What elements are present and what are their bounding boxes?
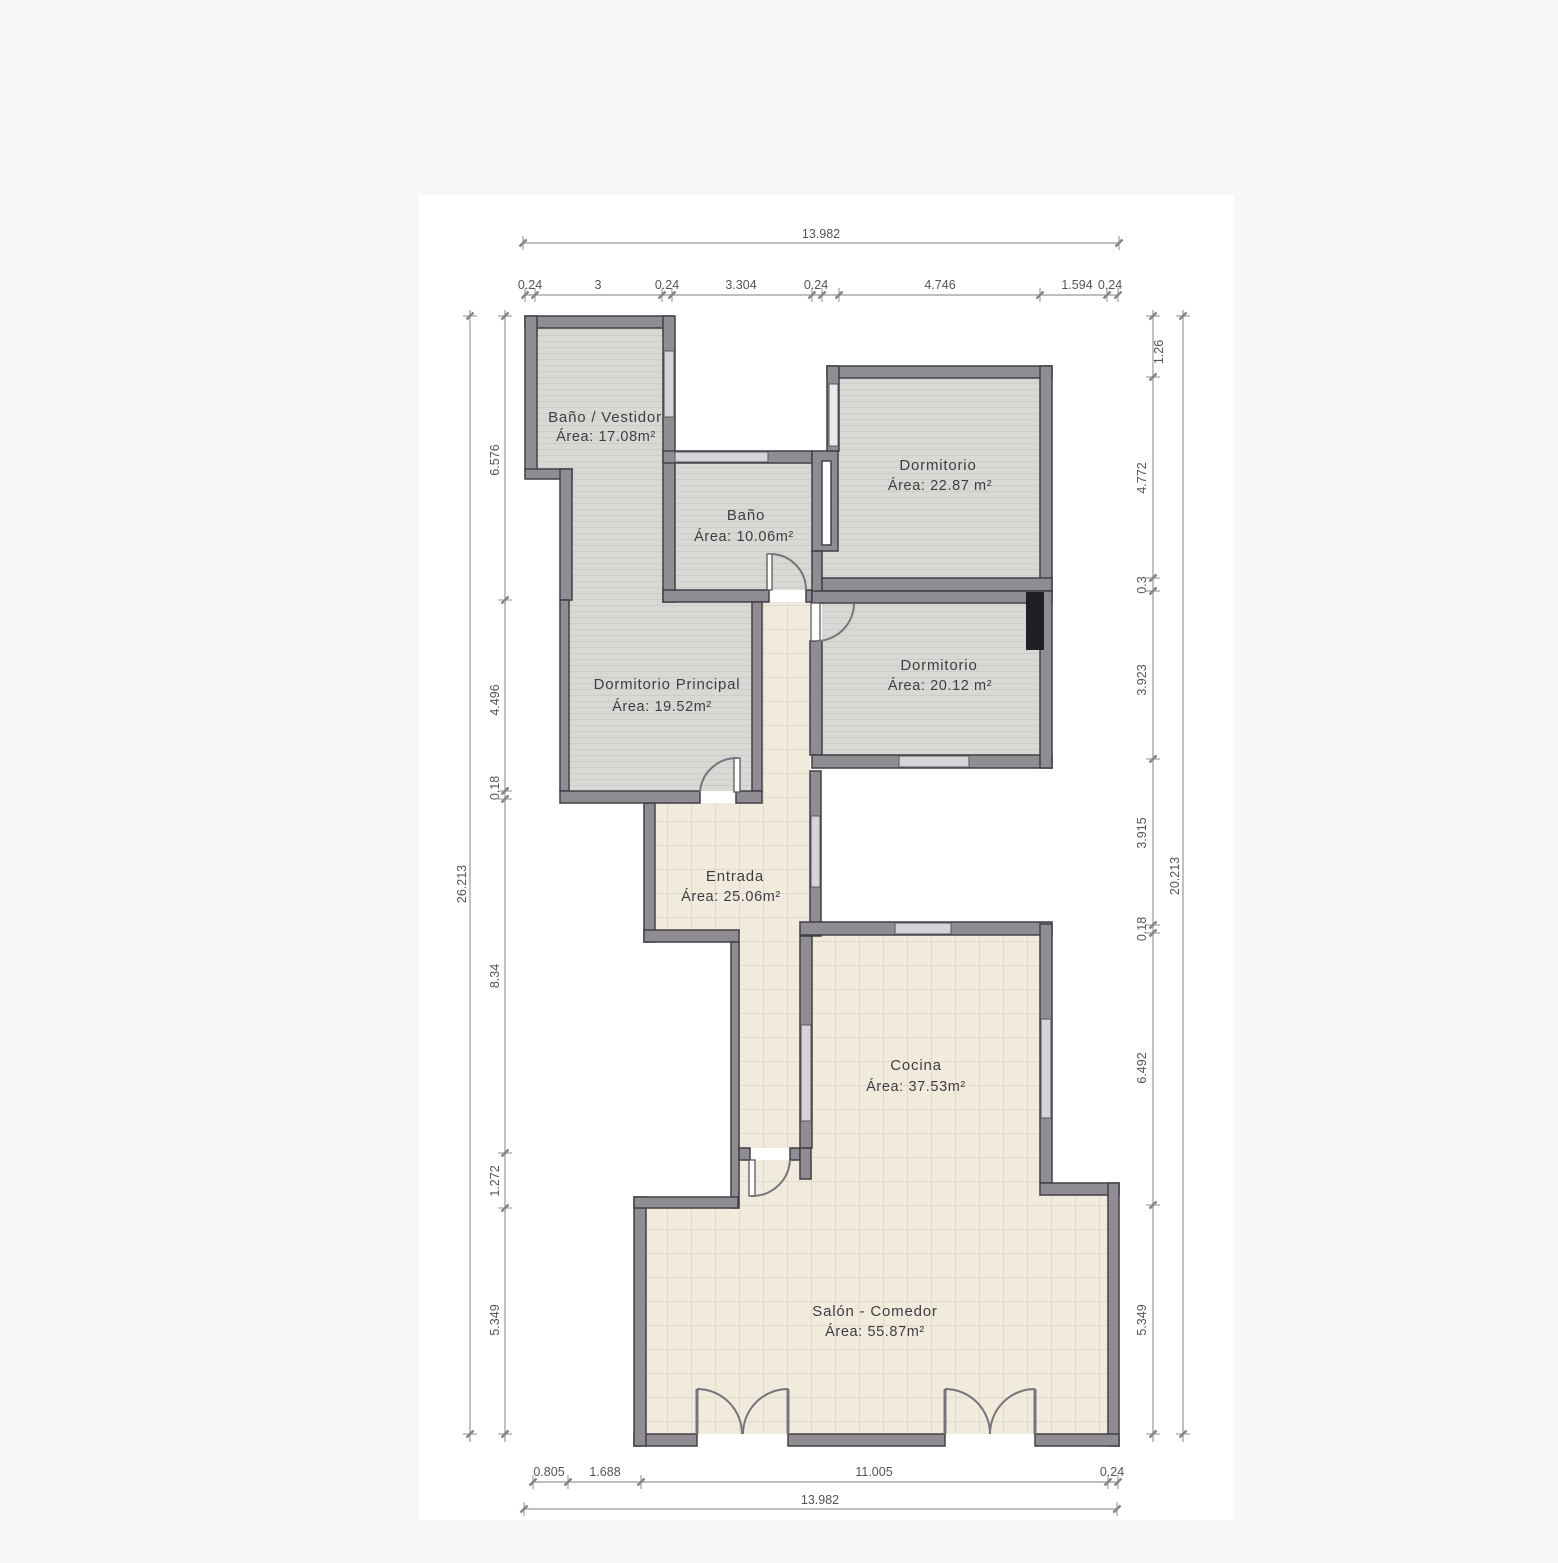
svg-text:13.982: 13.982: [801, 1493, 839, 1507]
svg-text:3.923: 3.923: [1135, 664, 1149, 695]
svg-text:1.272: 1.272: [488, 1165, 502, 1196]
svg-text:0.24: 0.24: [655, 278, 679, 292]
svg-text:5.349: 5.349: [1135, 1304, 1149, 1335]
svg-text:Salón - Comedor: Salón - Comedor: [812, 1303, 937, 1320]
svg-text:0.24: 0.24: [518, 278, 542, 292]
svg-text:Área: 22.87 m²: Área: 22.87 m²: [888, 477, 992, 494]
svg-text:Área: 20.12 m²: Área: 20.12 m²: [888, 677, 992, 694]
svg-text:1.688: 1.688: [589, 1465, 620, 1479]
svg-text:0.24: 0.24: [1098, 278, 1122, 292]
svg-text:8.34: 8.34: [488, 964, 502, 988]
svg-text:11.005: 11.005: [855, 1465, 892, 1479]
svg-text:Baño / Vestidor: Baño / Vestidor: [548, 409, 662, 426]
svg-text:13.982: 13.982: [802, 227, 840, 241]
svg-text:Área: 25.06m²: Área: 25.06m²: [681, 888, 781, 905]
svg-text:Área: 55.87m²: Área: 55.87m²: [825, 1323, 925, 1340]
svg-text:4.772: 4.772: [1135, 462, 1149, 493]
svg-text:Área: 10.06m²: Área: 10.06m²: [694, 528, 794, 545]
svg-text:Área: 37.53m²: Área: 37.53m²: [866, 1078, 966, 1095]
svg-text:3.304: 3.304: [725, 278, 756, 292]
svg-text:0.24: 0.24: [804, 278, 828, 292]
svg-text:Área: 19.52m²: Área: 19.52m²: [612, 698, 712, 715]
svg-text:1.26: 1.26: [1152, 340, 1166, 364]
svg-text:3: 3: [595, 278, 602, 292]
svg-text:6.576: 6.576: [488, 444, 502, 475]
svg-text:20.213: 20.213: [1168, 857, 1182, 895]
svg-text:26.213: 26.213: [455, 865, 469, 903]
svg-text:4.746: 4.746: [924, 278, 955, 292]
svg-text:4.496: 4.496: [488, 684, 502, 715]
svg-text:Dormitorio Principal: Dormitorio Principal: [594, 676, 741, 693]
svg-text:Dormitorio: Dormitorio: [899, 457, 976, 474]
svg-text:Cocina: Cocina: [890, 1057, 942, 1074]
svg-text:0.24: 0.24: [1100, 1465, 1124, 1479]
svg-text:6.492: 6.492: [1135, 1052, 1149, 1083]
svg-text:Área: 17.08m²: Área: 17.08m²: [556, 428, 656, 445]
svg-text:Entrada: Entrada: [706, 868, 764, 885]
svg-text:0.3: 0.3: [1135, 576, 1149, 593]
svg-text:1.594: 1.594: [1061, 278, 1092, 292]
svg-text:Dormitorio: Dormitorio: [900, 657, 977, 674]
svg-text:5.349: 5.349: [488, 1304, 502, 1335]
svg-text:3.915: 3.915: [1135, 817, 1149, 848]
svg-text:0.18: 0.18: [488, 776, 502, 800]
svg-text:Baño: Baño: [727, 507, 765, 524]
svg-text:0.805: 0.805: [533, 1465, 564, 1479]
svg-text:0.18: 0.18: [1135, 917, 1149, 941]
